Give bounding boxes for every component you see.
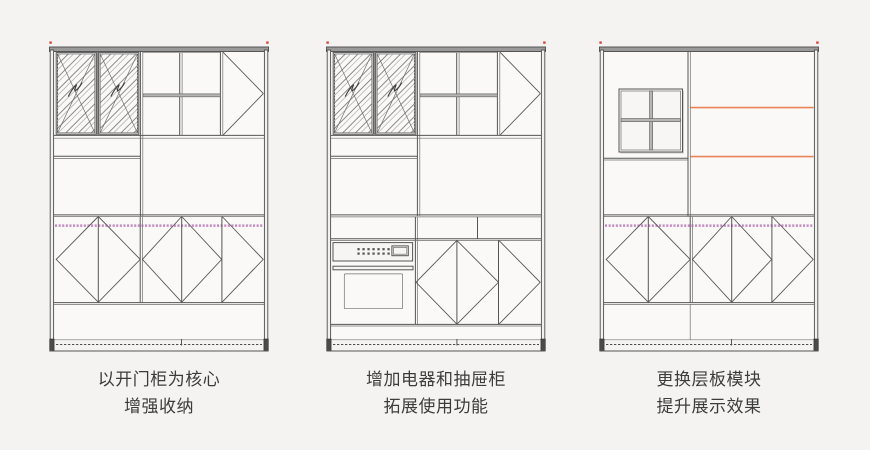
window-shelf-module — [619, 89, 684, 154]
caption-2-line1: 增加电器和抽屉柜 — [327, 366, 545, 393]
caption-1-line1: 以开门柜为核心 — [50, 366, 268, 393]
caption-1: 以开门柜为核心 增强收纳 — [50, 366, 268, 420]
caption-3-line2: 提升展示效果 — [600, 393, 818, 420]
caption-1-line2: 增强收纳 — [50, 393, 268, 420]
cabinet-shelf-module-drawing — [600, 40, 818, 353]
figure-cabinet-open-door: 以开门柜为核心 增强收纳 — [50, 40, 268, 420]
caption-3: 更换层板模块 提升展示效果 — [600, 366, 818, 420]
carcass — [599, 41, 818, 341]
glass-door-section — [56, 53, 139, 135]
caption-3-line1: 更换层板模块 — [600, 366, 818, 393]
figure-cabinet-shelf-module: 更换层板模块 提升展示效果 — [600, 40, 818, 420]
cabinet-appliance-drawer-drawing — [327, 40, 545, 353]
caption-2: 增加电器和抽屉柜 拓展使用功能 — [327, 366, 545, 420]
cabinet-open-door-drawing — [50, 40, 268, 353]
page-canvas: 以开门柜为核心 增强收纳 — [0, 0, 870, 450]
figure-cabinet-appliance-drawer: 增加电器和抽屉柜 拓展使用功能 — [327, 40, 545, 420]
caption-2-line2: 拓展使用功能 — [327, 393, 545, 420]
glass-door-section — [333, 53, 416, 135]
